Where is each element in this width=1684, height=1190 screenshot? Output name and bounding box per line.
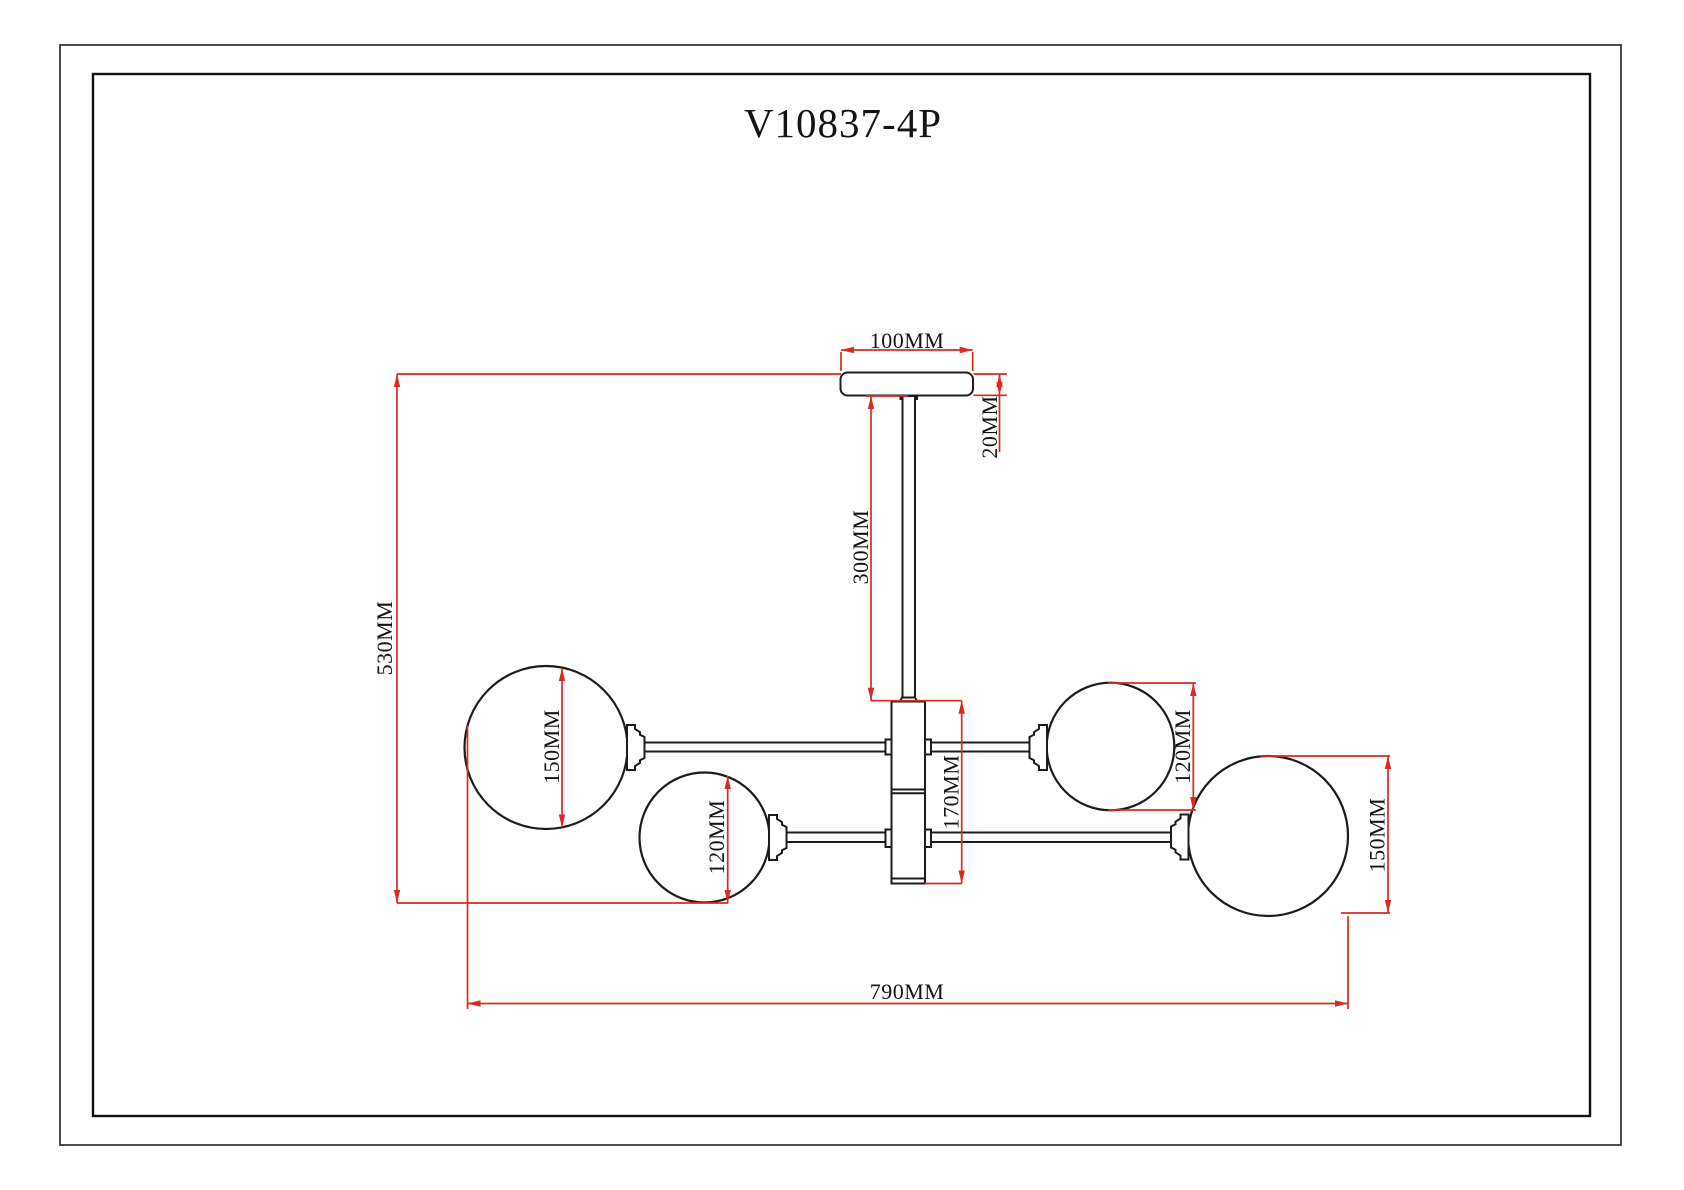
suspension-rod: [903, 396, 916, 698]
rod-length-label: 300MM: [848, 510, 873, 585]
upper-left-arm: [645, 743, 886, 752]
left-globe-socket: [627, 725, 645, 770]
lower-left-globe-socket: [769, 815, 787, 860]
dimension-lines: [394, 347, 1391, 1009]
right-globe-diameter-label: 120MM: [1170, 709, 1195, 784]
upper-right-arm: [931, 743, 1030, 752]
inner-border: [93, 74, 1590, 1116]
technical-drawing: V10837-4P: [0, 0, 1684, 1190]
drawing-title: V10837-4P: [744, 100, 942, 146]
lower-right-arm: [931, 833, 1171, 843]
outer-border: [60, 45, 1621, 1145]
lower-left-arm: [787, 833, 886, 843]
canopy-width-label: 100MM: [870, 328, 945, 353]
center-body-height-label: 170MM: [939, 755, 964, 830]
far-right-globe-socket: [1171, 815, 1189, 860]
right-globe-socket: [1030, 725, 1048, 770]
canopy-height-label: 20MM: [977, 395, 1002, 458]
lower-left-globe-diameter-label: 120MM: [704, 800, 729, 875]
right-globe: [1047, 683, 1175, 811]
left-globe-diameter-label: 150MM: [539, 709, 564, 784]
far-right-globe-diameter-label: 150MM: [1365, 798, 1390, 873]
fixture-drawing: [465, 373, 1349, 917]
drawing-sheet: V10837-4P: [0, 0, 1684, 1190]
far-right-globe: [1188, 756, 1348, 916]
overall-height-label: 530MM: [372, 601, 397, 676]
overall-width-label: 790MM: [870, 979, 945, 1004]
ceiling-canopy: [841, 373, 974, 396]
